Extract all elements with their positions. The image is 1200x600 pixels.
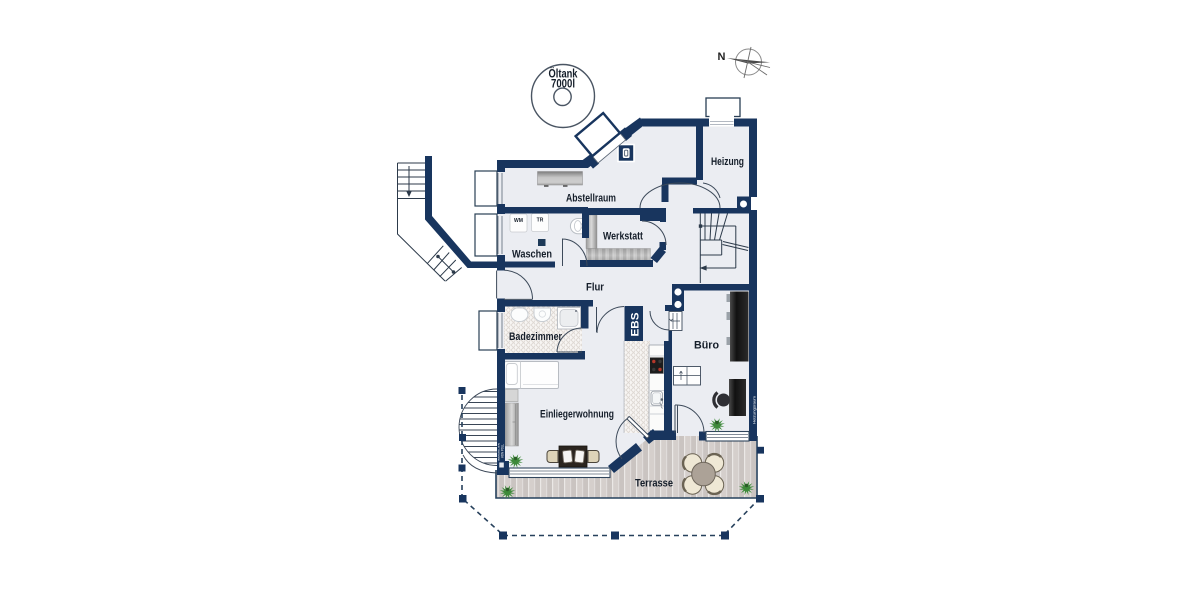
svg-text:Büro: Büro bbox=[694, 340, 719, 352]
svg-text:Badezimmer: Badezimmer bbox=[509, 331, 563, 343]
svg-text:N: N bbox=[718, 51, 726, 63]
svg-text:Flur: Flur bbox=[586, 282, 605, 294]
svg-text:Heizung: Heizung bbox=[711, 156, 744, 168]
svg-text:EBS: EBS bbox=[630, 313, 642, 337]
svg-text:7000l: 7000l bbox=[551, 78, 575, 90]
svg-text:IMMOBILIEN: IMMOBILIEN bbox=[499, 442, 501, 461]
svg-text:Terrasse: Terrasse bbox=[635, 478, 673, 490]
svg-text:Einliegerwohnung: Einliegerwohnung bbox=[540, 409, 614, 421]
svg-text:Werkstatt: Werkstatt bbox=[603, 231, 643, 243]
svg-text:VON POLL: VON POLL bbox=[501, 444, 505, 458]
svg-text:Heizungsraum: Heizungsraum bbox=[753, 396, 757, 424]
svg-text:Waschen: Waschen bbox=[512, 249, 552, 261]
svg-text:WM: WM bbox=[514, 218, 523, 224]
svg-text:Abstellraum: Abstellraum bbox=[566, 193, 616, 205]
svg-text:TR: TR bbox=[537, 218, 544, 224]
